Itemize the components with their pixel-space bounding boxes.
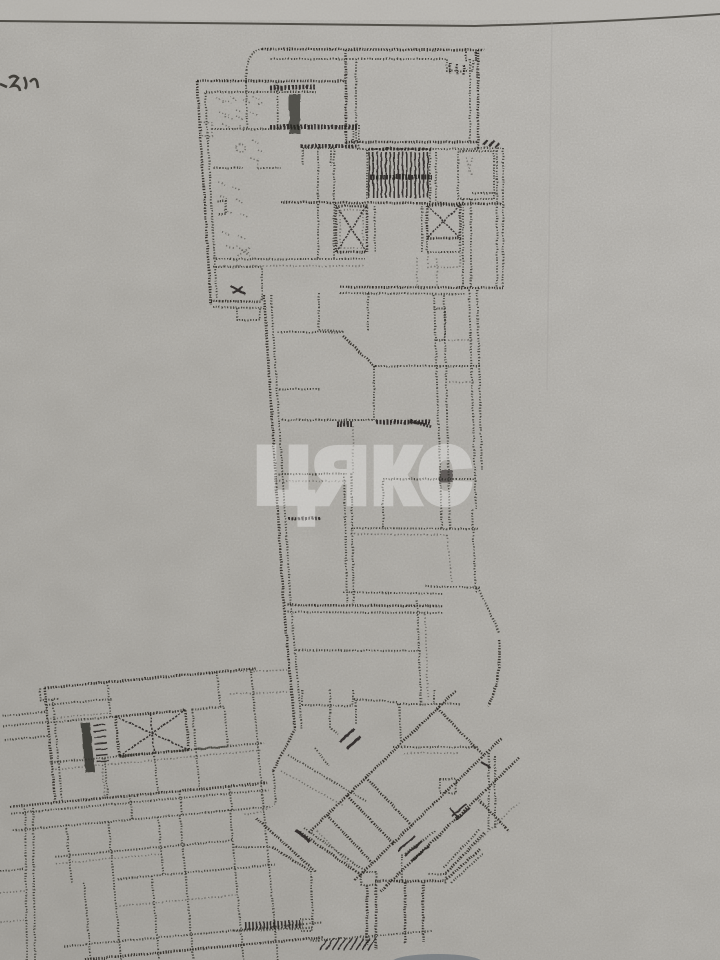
svg-text:цякс: цякс — [253, 410, 472, 526]
